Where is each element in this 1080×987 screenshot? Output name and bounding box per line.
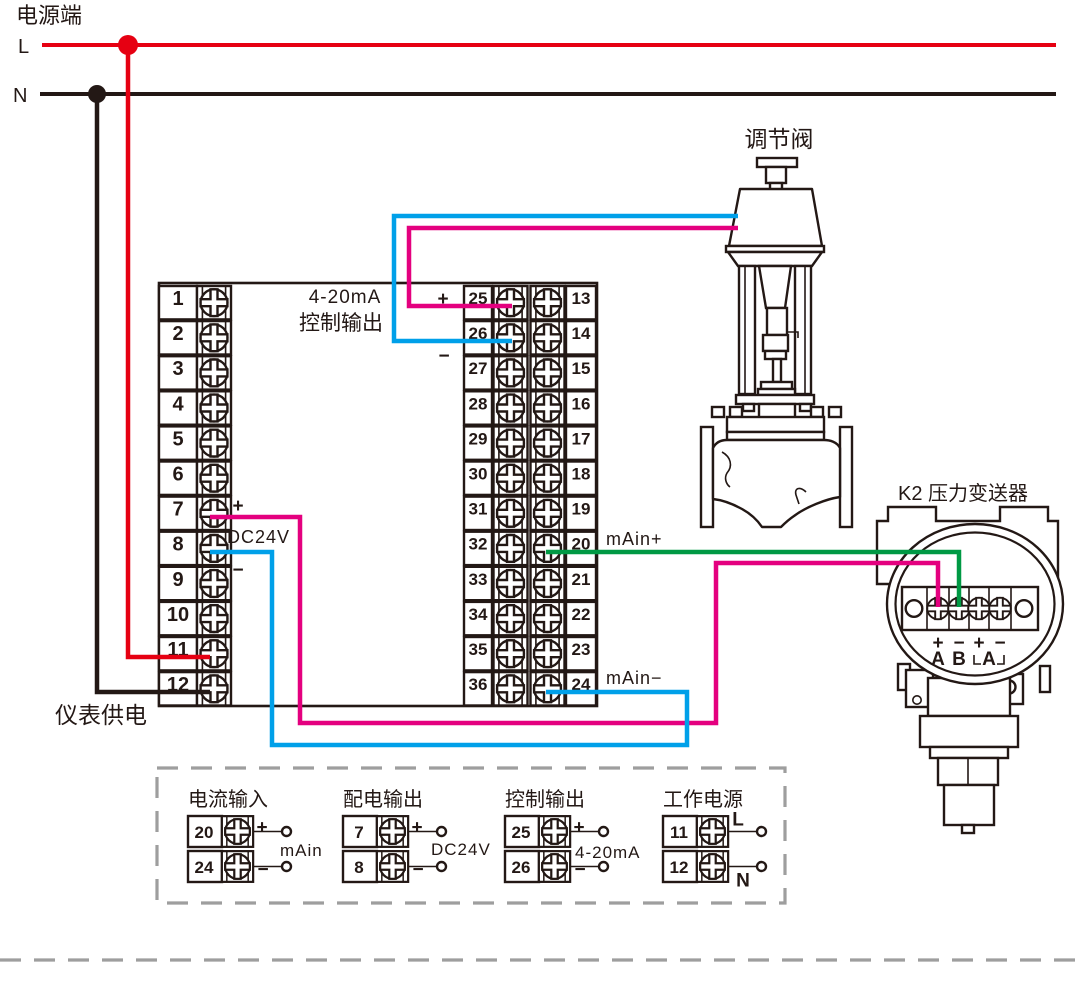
svg-text:31: 31 (469, 500, 488, 519)
main-minus-label: mAin− (606, 668, 663, 688)
svg-text:3: 3 (172, 358, 183, 380)
terminal-left-3: 3 (159, 356, 231, 389)
terminal-left-2: 2 (159, 321, 231, 354)
legend-sign: N (736, 871, 750, 892)
svg-text:34: 34 (469, 605, 488, 624)
legend-title: 配电输出 (343, 788, 423, 811)
terminal-left-4: 4 (159, 391, 231, 424)
line-n-label: N (13, 85, 28, 107)
main-plus-label: mAin+ (606, 529, 663, 549)
svg-text:10: 10 (167, 604, 189, 626)
instrument-supply-label: 仪表供电 (55, 702, 147, 728)
power-rails: 电源端 L N (13, 3, 1056, 107)
legend-terminal-12: 12N (663, 851, 766, 892)
svg-text:13: 13 (572, 289, 591, 308)
dc24v-label: DC24V (227, 527, 290, 547)
legend-terminal-24: 24− (188, 851, 291, 882)
wire-end-circle (757, 862, 766, 871)
svg-text:5: 5 (172, 428, 183, 450)
valve-handle (757, 158, 797, 167)
junction-dot-neutral (88, 85, 106, 103)
transmitter-sign-4: − (994, 633, 1005, 654)
svg-text:23: 23 (572, 640, 591, 659)
svg-text:6: 6 (172, 464, 183, 486)
terminal-right-row-2: 2614 (464, 321, 596, 354)
svg-text:14: 14 (572, 324, 591, 343)
wire-end-circle (437, 862, 446, 871)
svg-text:24: 24 (195, 858, 214, 877)
svg-text:8: 8 (172, 534, 183, 556)
svg-text:30: 30 (469, 465, 488, 484)
svg-text:19: 19 (572, 500, 591, 519)
instrument-panel: 123456789101112 251326142715281629173018… (55, 283, 663, 728)
legend-terminal-11: 11L (663, 810, 766, 848)
svg-text:7: 7 (354, 823, 363, 842)
junction-dot-live (118, 35, 138, 55)
legend-sign: + (256, 818, 267, 839)
svg-text:4: 4 (172, 393, 184, 415)
terminal-left-1: 1 (159, 286, 231, 319)
valve-flange (727, 417, 824, 432)
terminal-left-11: 11 (159, 637, 231, 670)
wire-end-circle (282, 862, 291, 871)
svg-text:7: 7 (172, 499, 183, 521)
terminal-left-8: 8 (159, 532, 231, 565)
svg-text:25: 25 (512, 823, 531, 842)
svg-text:27: 27 (469, 359, 488, 378)
legend-group-2: 配电输出7+8−DC24V (343, 788, 491, 882)
terminal-right-row-11: 3523 (464, 637, 596, 670)
line-l-label: L (18, 36, 30, 58)
control-output-value: 4-20mA (309, 287, 382, 308)
terminal-right-row-4: 2816 (464, 391, 596, 424)
terminal-right-row-5: 2917 (464, 426, 596, 459)
terminal-right-row-6: 3018 (464, 462, 596, 495)
legend-sign: − (412, 860, 423, 881)
wire-end-circle (757, 827, 766, 836)
svg-text:29: 29 (469, 429, 488, 448)
terminal-left-7: 7 (159, 497, 231, 530)
valve-actuator (729, 189, 822, 246)
legend-sign: + (573, 818, 584, 839)
control-output-label: 控制输出 (299, 312, 383, 335)
legend-value-label: DC24V (431, 840, 491, 859)
transmitter-letter-b: B (952, 649, 966, 670)
wire-end-circle (599, 827, 608, 836)
terminal-right-row-3: 2715 (464, 356, 596, 389)
terminal-right-row-9: 3321 (464, 567, 596, 600)
transmitter-letter-a: A (931, 649, 945, 670)
terminal-left-5: 5 (159, 426, 231, 459)
svg-text:15: 15 (572, 359, 591, 378)
legend-group-3: 控制输出25+26−4-20mA (505, 788, 641, 882)
svg-text:18: 18 (572, 465, 591, 484)
legend-group-1: 电流输入20+24−mAin (188, 788, 323, 882)
svg-text:16: 16 (572, 394, 591, 413)
legend-value-label: mAin (280, 841, 323, 860)
legend: 电流输入20+24−mAin配电输出7+8−DC24V控制输出25+26−4-2… (157, 768, 785, 903)
svg-text:35: 35 (469, 640, 488, 659)
power-terminal-title: 电源端 (16, 3, 82, 28)
legend-group-4: 工作电源11L12N (663, 788, 766, 892)
svg-text:36: 36 (469, 675, 488, 694)
valve-stem (759, 266, 791, 308)
legend-terminal-20: 20+ (188, 816, 291, 847)
transmitter-label: K2 压力变送器 (898, 482, 1028, 505)
wire-end-circle (599, 862, 608, 871)
control-valve: 调节阀 (701, 126, 852, 527)
svg-text:33: 33 (469, 570, 488, 589)
wire-end-circle (282, 827, 291, 836)
terminal-right-row-1: 2513 (464, 286, 596, 319)
svg-text:1: 1 (172, 288, 183, 310)
legend-title: 控制输出 (505, 788, 585, 811)
wire-main-minus-to-dc24v-minus (210, 552, 687, 745)
right-terminal-strip: 2513261427152816291730183119322033213422… (464, 286, 596, 706)
legend-value-label: 4-20mA (575, 843, 641, 862)
terminal-left-12: 12 (159, 672, 231, 705)
pressure-transmitter: K2 压力变送器 + − + − A B A (877, 482, 1063, 833)
terminal-right-row-12: 3624 (464, 672, 596, 705)
legend-title: 工作电源 (663, 788, 743, 811)
legend-title: 电流输入 (188, 788, 268, 811)
terminal-left-10: 10 (159, 602, 231, 635)
valve-pipe-flange-left (701, 427, 713, 527)
transmitter-letter-a2: A (982, 649, 996, 670)
wire-end-circle (437, 827, 446, 836)
terminal-right-row-8: 3220 (464, 532, 596, 565)
svg-text:21: 21 (572, 570, 591, 589)
t7-plus-sign: + (232, 496, 243, 517)
svg-text:26: 26 (512, 858, 531, 877)
valve-label: 调节阀 (745, 126, 814, 152)
terminal-left-6: 6 (159, 462, 231, 495)
transmitter-probe (944, 785, 994, 825)
svg-text:2: 2 (172, 323, 183, 345)
svg-text:17: 17 (572, 429, 591, 448)
svg-text:12: 12 (670, 858, 689, 877)
wiring-diagram: 电源端 L N 123456789101112 2513261427152816… (0, 0, 1080, 987)
t26-minus-sign: − (438, 346, 449, 367)
t8-minus-sign: − (232, 560, 243, 581)
valve-body (713, 440, 840, 527)
svg-text:22: 22 (572, 605, 591, 624)
svg-text:9: 9 (172, 569, 183, 591)
legend-sign: − (574, 860, 585, 881)
left-terminal-strip: 123456789101112 (159, 286, 231, 706)
svg-text:28: 28 (469, 394, 488, 413)
legend-sign: L (732, 810, 744, 831)
terminal-right-row-7: 3119 (464, 497, 596, 530)
legend-sign: − (257, 860, 268, 881)
valve-yoke (739, 266, 755, 394)
terminal-left-9: 9 (159, 567, 231, 600)
svg-text:11: 11 (670, 823, 688, 842)
svg-text:8: 8 (354, 858, 363, 877)
legend-sign: + (411, 818, 422, 839)
terminal-right-row-10: 3422 (464, 602, 596, 635)
valve-pipe-flange-right (840, 427, 852, 527)
svg-text:20: 20 (195, 823, 214, 842)
svg-text:32: 32 (469, 535, 488, 554)
